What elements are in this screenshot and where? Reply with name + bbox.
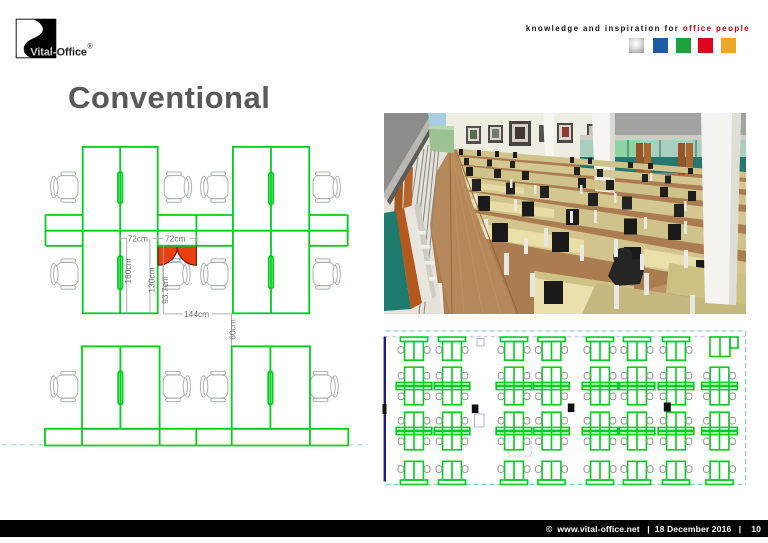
svg-text:130cm: 130cm <box>146 267 156 292</box>
svg-text:72cm: 72cm <box>165 233 186 243</box>
svg-text:160cm: 160cm <box>123 258 133 283</box>
svg-text:93.7cm: 93.7cm <box>160 276 170 303</box>
svg-text:72cm: 72cm <box>128 233 149 243</box>
svg-text:60cm: 60cm <box>228 319 238 340</box>
svg-text:144cm: 144cm <box>184 309 209 319</box>
